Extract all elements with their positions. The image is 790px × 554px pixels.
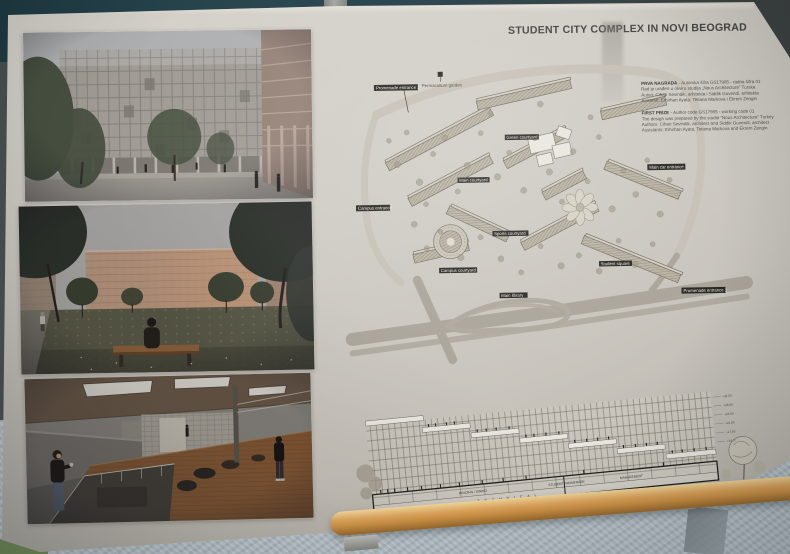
building-slabs [383,75,685,288]
prize-text-serbian: PRVA NAGRADA- Autorska šifra GS17985 - r… [641,79,769,104]
site-plan-label: Permaculture garden [422,71,463,88]
site-plan-label: Campus entrance [356,205,393,212]
site-plan-label: Main library [500,292,528,298]
svg-text:+21.00: +21.00 [725,420,735,425]
central-facilities [527,125,572,166]
site-plan-label: Main car entrance [647,164,685,171]
render-courtyard-photo [23,29,313,202]
site-plan-label: Student square [599,261,632,267]
poster-title: STUDENT CITY COMPLEX IN NOVI BEOGRAD [508,21,768,37]
easel-leg-shadow [684,506,729,554]
svg-text:Promenade entrance 2: Promenade entrance 2 [376,85,420,91]
prize-lead-en: FIRST PRIZE [642,110,670,115]
svg-text:+28.00: +28.00 [723,402,733,407]
svg-text:Main car entrance: Main car entrance [649,164,684,170]
site-plan-label: Promenade entrance 1 [681,287,727,294]
svg-text:Main library: Main library [501,293,524,298]
svg-text:Sports courtyard: Sports courtyard [494,231,526,237]
site-plan-label: Campus courtyard [439,267,477,273]
poster-board: STUDENT CITY COMPLEX IN NOVI BEOGRAD [0,0,790,554]
credit-line: Asistenti: Emirhan Ayata, Tetiana Markov… [641,96,769,104]
svg-text:+17.50: +17.50 [726,429,736,434]
svg-text:+31.50: +31.50 [722,393,732,398]
svg-text:Permaculture garden: Permaculture garden [422,82,463,88]
site-plan-label: Sports courtyard [492,230,528,236]
site-plan-label: Main courtyard [458,177,490,183]
svg-text:Student square: Student square [601,261,631,267]
svg-text:Main courtyard: Main courtyard [459,177,488,183]
render-interior-photo [24,373,313,524]
prize-credits: PRVA NAGRADA- Autorska šifra GS17985 - r… [641,79,770,134]
photo-scene: STUDENT CITY COMPLEX IN NOVI BEOGRAD [0,0,790,554]
svg-text:Campus entrance: Campus entrance [358,205,393,211]
circular-garden [562,189,599,226]
svg-text:Promenade entrance 1: Promenade entrance 1 [683,287,727,293]
easel-clamp [343,535,378,552]
site-plan-label: Green courtyard [505,134,539,140]
prize-text-english: FIRST PRIZE- Author code GS17985 - worki… [642,108,770,133]
svg-text:Campus courtyard: Campus courtyard [441,267,477,273]
render-park-photo [19,201,315,374]
section-trees-right [718,434,767,481]
credit-line: Assistants: Emirhan Ayata, Tetiana Marko… [642,125,770,133]
elevation-notes: +31.50 +28.00 +24.50 +21.00 +17.50 +14.0… [712,393,736,444]
svg-text:Green courtyard: Green courtyard [506,134,538,140]
round-pavilion [433,224,468,259]
svg-text:+24.50: +24.50 [724,411,734,416]
